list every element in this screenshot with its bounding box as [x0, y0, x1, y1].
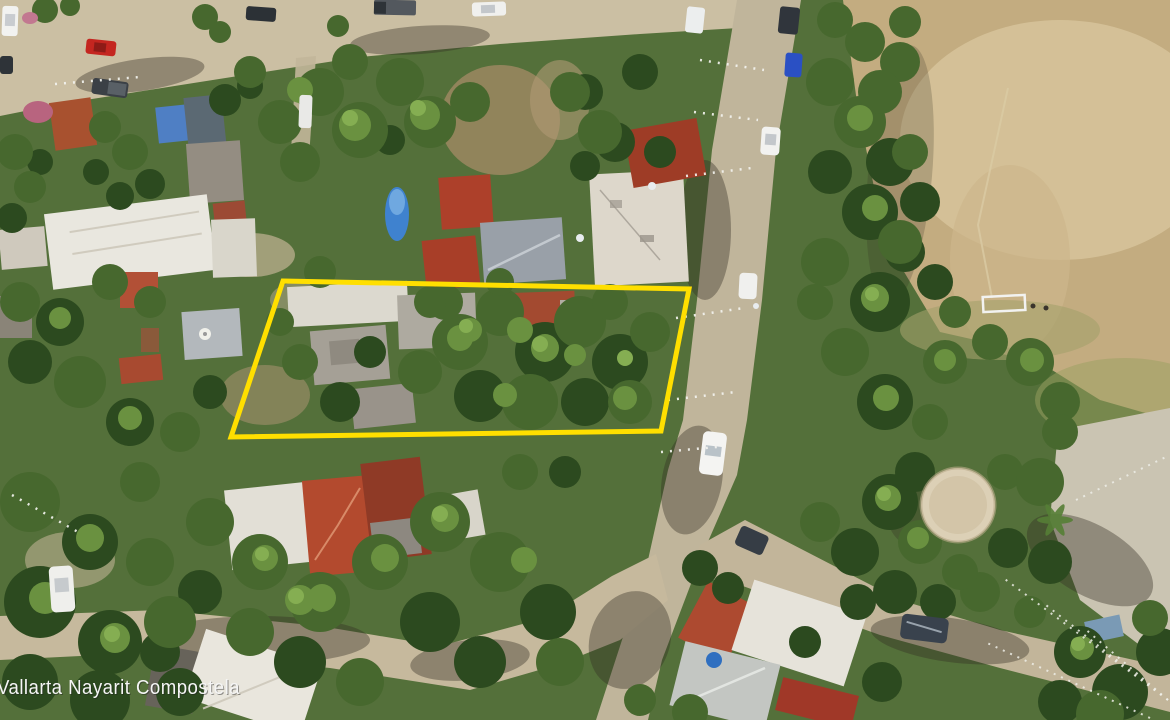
person	[1044, 306, 1049, 311]
car-white	[1, 6, 18, 37]
pavilion	[921, 468, 995, 542]
bougainvillea-corner	[22, 12, 38, 24]
car-dark	[0, 56, 13, 74]
truck-white	[298, 95, 312, 128]
watermark-text: Vallarta Nayarit Compostela	[0, 677, 240, 699]
water-tank-blue	[706, 652, 722, 668]
car-blue	[784, 52, 803, 77]
van-white	[685, 6, 706, 34]
person	[1031, 304, 1036, 309]
car-red	[85, 38, 116, 56]
suv-dark	[778, 6, 801, 35]
aerial-photo: Vallarta Nayarit Compostela Vallarta Nay…	[0, 0, 1170, 720]
blue-tarp	[155, 105, 189, 144]
car-white	[760, 126, 781, 155]
car-white	[738, 273, 757, 300]
truck	[374, 0, 416, 15]
suv-dark	[246, 6, 277, 22]
car-white	[472, 1, 506, 16]
bougainvillea	[23, 101, 53, 123]
car-white	[48, 565, 75, 613]
aerial-photo-canvas: Vallarta Nayarit Compostela Vallarta Nay…	[0, 0, 1170, 720]
